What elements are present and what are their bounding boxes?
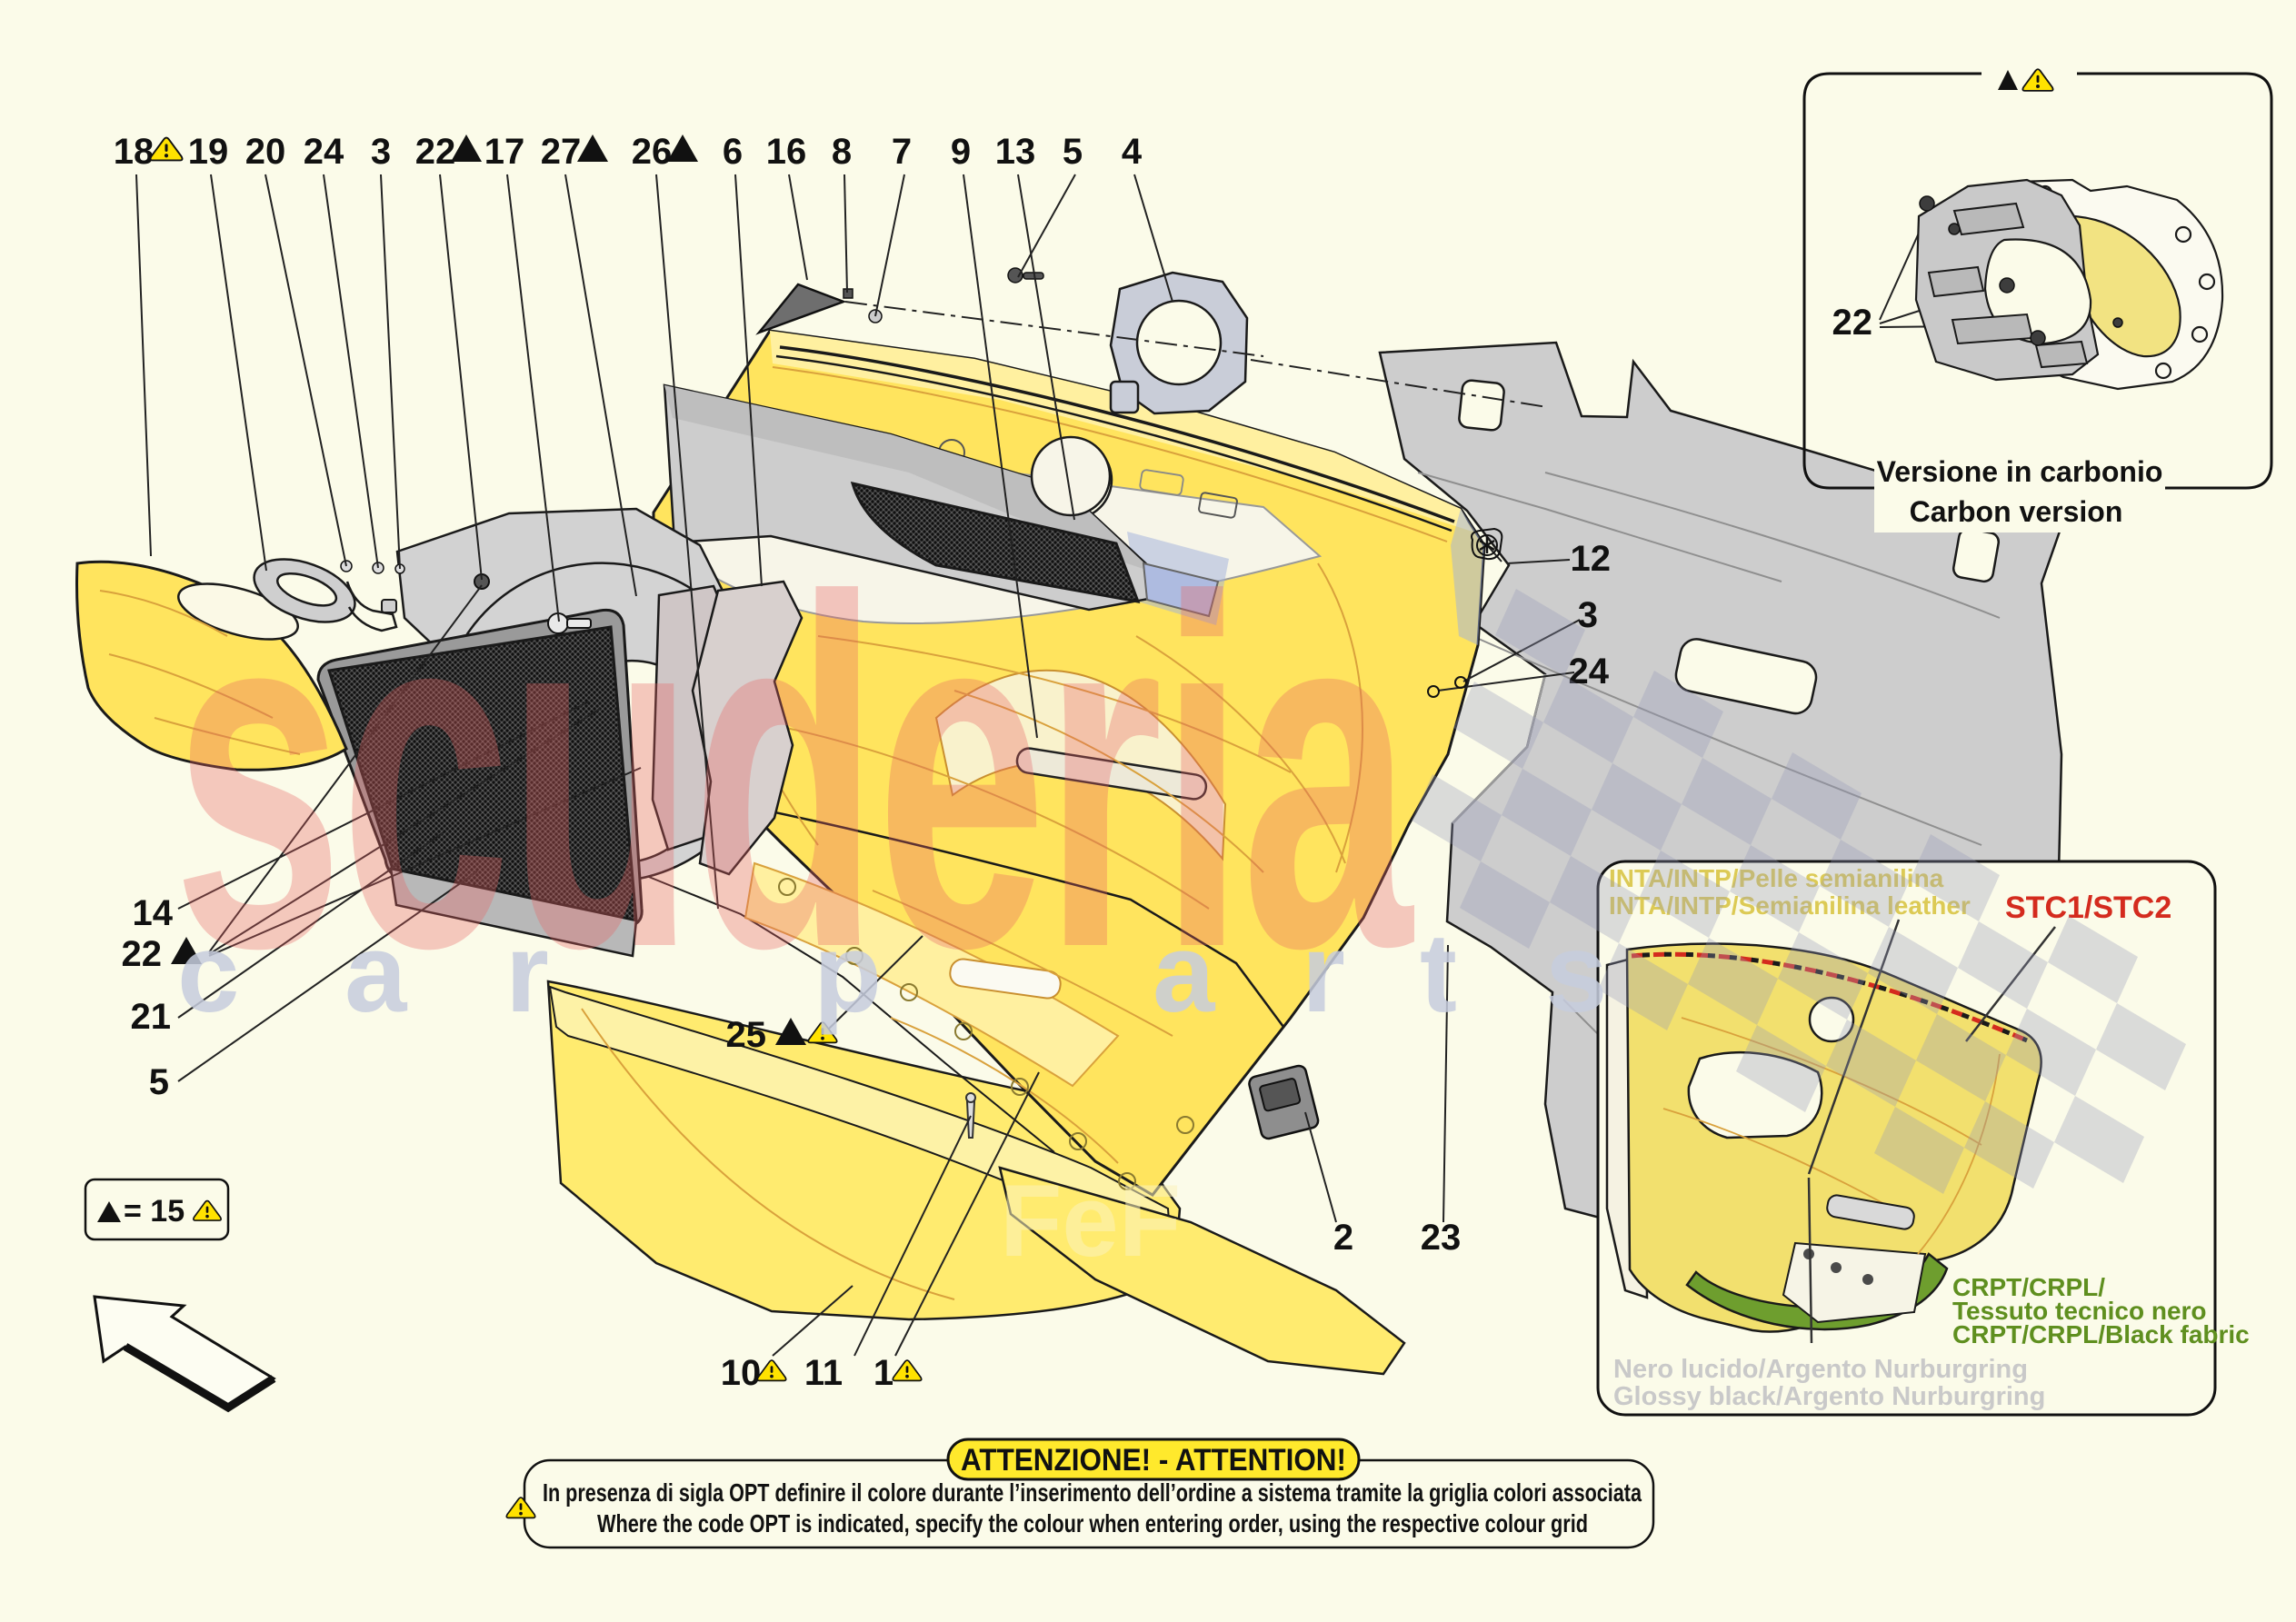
svg-text:27: 27 [541,132,582,172]
svg-text:ATTENZIONE! - ATTENTION!: ATTENZIONE! - ATTENTION! [961,1443,1346,1478]
svg-text:a: a [1153,911,1216,1036]
svg-text:r: r [505,911,549,1036]
svg-text:19: 19 [188,132,229,172]
svg-text:24: 24 [304,132,344,172]
svg-text:11: 11 [804,1353,843,1393]
svg-text:9: 9 [951,132,971,172]
svg-text:21: 21 [131,997,172,1037]
svg-text:Glossy black/Argento Nurburgri: Glossy black/Argento Nurburgring [1613,1382,2045,1411]
svg-text:17: 17 [484,132,525,172]
svg-text:CRPT/CRPL/Black fabric: CRPT/CRPL/Black fabric [1952,1320,2250,1348]
svg-text:23: 23 [1421,1218,1462,1258]
svg-text:4: 4 [1122,132,1143,172]
svg-text:In presenza di sigla OPT defin: In presenza di sigla OPT definire il col… [543,1478,1642,1507]
svg-text:7: 7 [892,132,912,172]
svg-text:p: p [814,911,882,1036]
svg-text:13: 13 [995,132,1036,172]
svg-text:Nero lucido/Argento Nurburgrin: Nero lucido/Argento Nurburgring [1613,1355,2028,1384]
svg-text:Carbon version: Carbon version [1910,495,2123,528]
svg-text:Versione in carbonio: Versione in carbonio [1877,455,2163,488]
svg-text:14: 14 [133,893,174,933]
svg-text:= 15: = 15 [124,1194,185,1229]
svg-text:12: 12 [1571,539,1612,579]
svg-text:5: 5 [149,1062,169,1102]
svg-text:22: 22 [1832,303,1873,343]
svg-text:22: 22 [415,132,456,172]
svg-text:STC1/STC2: STC1/STC2 [2005,891,2171,925]
svg-text:18: 18 [114,132,155,172]
svg-text:22: 22 [122,934,163,974]
svg-text:16: 16 [766,132,807,172]
svg-text:5: 5 [1063,132,1083,172]
svg-text:FeF: FeF [1000,1164,1181,1278]
svg-text:6: 6 [723,132,743,172]
svg-text:s: s [1545,911,1607,1036]
svg-text:Where the code OPT is indicate: Where the code OPT is indicated, specify… [597,1509,1588,1537]
svg-text:10: 10 [721,1353,762,1393]
svg-text:3: 3 [371,132,391,172]
svg-text:c: c [177,911,239,1036]
svg-text:1: 1 [873,1353,893,1393]
svg-text:8: 8 [832,132,852,172]
svg-text:a: a [344,911,408,1036]
svg-text:20: 20 [245,132,286,172]
svg-text:t: t [1420,911,1457,1036]
svg-text:2: 2 [1333,1218,1353,1258]
svg-text:26: 26 [632,132,673,172]
svg-text:r: r [1302,911,1345,1036]
